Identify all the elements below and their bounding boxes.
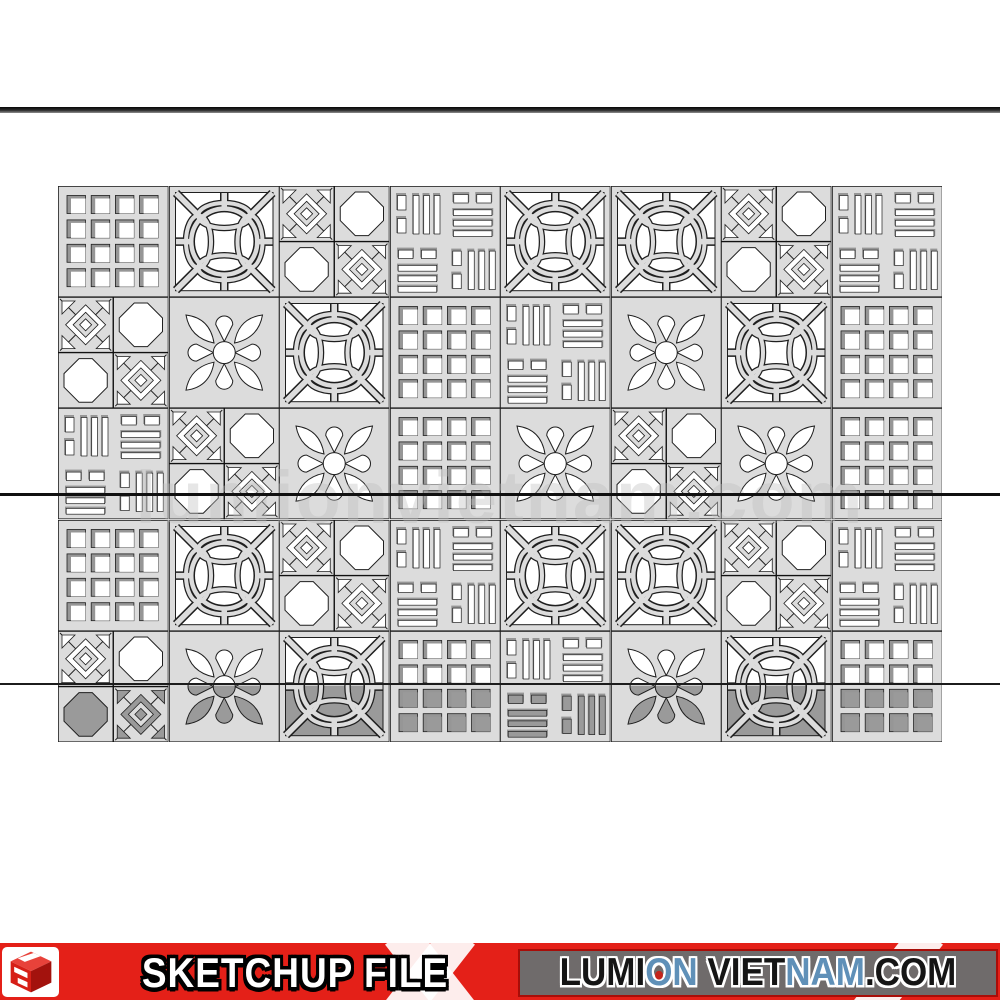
breeze-block-squares xyxy=(390,297,501,408)
breeze-block-circle xyxy=(611,186,722,297)
breeze-block-octaquad xyxy=(58,631,169,742)
breeze-block-squares xyxy=(390,408,501,519)
site-banner: LUMION VIETNAM.COM xyxy=(518,949,998,997)
breeze-block-circle xyxy=(721,631,832,742)
breeze-block-flower xyxy=(169,297,280,408)
breeze-block-flower xyxy=(169,631,280,742)
breeze-block-octaquad xyxy=(279,186,390,297)
breeze-block-octaquad xyxy=(58,297,169,408)
breeze-block-octaquad xyxy=(611,408,722,519)
breeze-block-squares xyxy=(832,631,943,742)
breeze-block-flower xyxy=(611,631,722,742)
breeze-block-octaquad xyxy=(721,520,832,631)
breeze-block-circle xyxy=(169,520,280,631)
breeze-block-flower xyxy=(721,408,832,519)
breeze-block-circle xyxy=(279,297,390,408)
breeze-block-slats xyxy=(832,520,943,631)
breeze-block-flower xyxy=(611,297,722,408)
breeze-block-slats xyxy=(58,408,169,519)
breeze-block-circle xyxy=(611,520,722,631)
breeze-block-octaquad xyxy=(279,520,390,631)
breeze-block-octaquad xyxy=(169,408,280,519)
breeze-block-slats xyxy=(832,186,943,297)
site-name: LUMION VIETNAM.COM xyxy=(560,951,957,995)
breeze-block-grid xyxy=(58,186,942,741)
breeze-block-squares xyxy=(832,408,943,519)
breeze-block-slats xyxy=(500,631,611,742)
breeze-block-circle xyxy=(169,186,280,297)
breeze-block-slats xyxy=(500,297,611,408)
site-name-segment: VIET xyxy=(698,951,786,994)
site-name-segment: .COM xyxy=(865,951,956,994)
breeze-block-circle xyxy=(500,520,611,631)
sketchup-model-view: lumionvietnam.com SKETCHUP FILE LUMION V… xyxy=(0,0,1000,1000)
site-name-segment: LUMI xyxy=(560,951,646,994)
site-name-segment: O xyxy=(645,951,672,995)
breeze-block-squares xyxy=(58,186,169,297)
site-name-segment: N xyxy=(672,951,697,994)
sketchup-banner: SKETCHUP FILE LUMION VIETNAM.COM xyxy=(0,943,1000,1000)
breeze-block-octaquad xyxy=(721,186,832,297)
breeze-block-flower xyxy=(279,408,390,519)
scene-mid-edge-line xyxy=(0,493,1000,496)
breeze-block-squares xyxy=(390,631,501,742)
sketchup-file-label: SKETCHUP FILE xyxy=(70,950,520,997)
sketchup-logo-icon xyxy=(2,947,59,997)
breeze-block-circle xyxy=(721,297,832,408)
breeze-block-circle xyxy=(279,631,390,742)
breeze-block-flower xyxy=(500,408,611,519)
scene-ground-edge-line xyxy=(0,683,1000,685)
breeze-block-circle xyxy=(500,186,611,297)
site-name-segment: NAM xyxy=(785,951,865,994)
bottom-banner: SKETCHUP FILE LUMION VIETNAM.COM xyxy=(0,943,1000,1000)
breeze-block-slats xyxy=(390,186,501,297)
scene-top-edge-line xyxy=(0,107,1000,113)
breeze-block-squares xyxy=(832,297,943,408)
breeze-block-slats xyxy=(390,520,501,631)
breeze-block-squares xyxy=(58,520,169,631)
